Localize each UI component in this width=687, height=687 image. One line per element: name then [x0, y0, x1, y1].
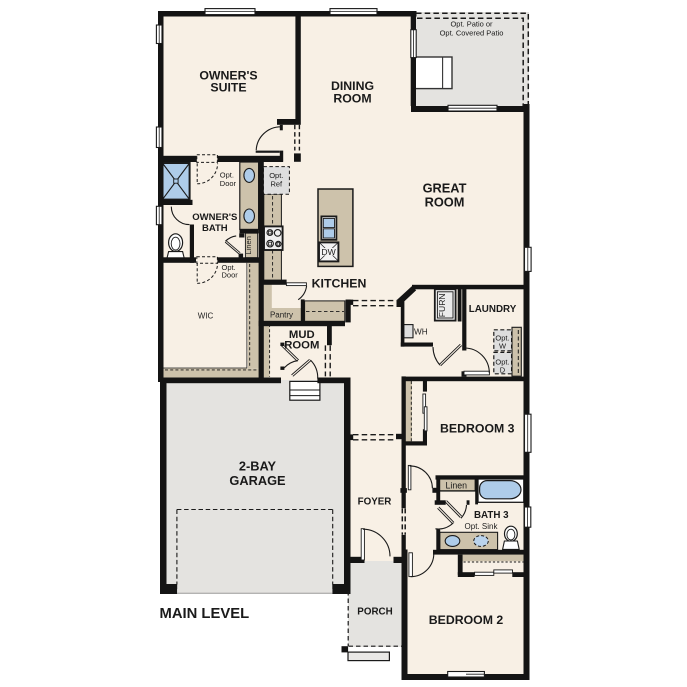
svg-text:BATH 3: BATH 3: [474, 510, 509, 521]
svg-text:GARAGE: GARAGE: [229, 473, 286, 488]
svg-text:BATH: BATH: [202, 223, 228, 234]
svg-text:Opt. Sink: Opt. Sink: [465, 522, 499, 531]
svg-text:W: W: [499, 341, 507, 350]
svg-text:Linen: Linen: [244, 236, 253, 254]
svg-text:MAIN LEVEL: MAIN LEVEL: [160, 606, 250, 622]
svg-text:BEDROOM 2: BEDROOM 2: [429, 613, 504, 627]
svg-text:FOYER: FOYER: [358, 496, 392, 507]
svg-text:Door: Door: [220, 179, 237, 188]
svg-text:Linen: Linen: [446, 481, 468, 491]
svg-text:GREAT: GREAT: [423, 181, 467, 196]
svg-text:SUITE: SUITE: [210, 81, 246, 95]
svg-text:Opt. Patio or: Opt. Patio or: [450, 19, 493, 28]
svg-text:OWNER'S: OWNER'S: [192, 212, 237, 223]
svg-text:Door: Door: [222, 271, 239, 280]
svg-text:2-BAY: 2-BAY: [239, 459, 277, 474]
svg-text:PORCH: PORCH: [357, 607, 392, 618]
svg-text:LAUNDRY: LAUNDRY: [469, 304, 517, 315]
svg-text:Opt. Covered Patio: Opt. Covered Patio: [440, 28, 504, 37]
svg-text:DW: DW: [321, 247, 336, 257]
svg-text:ROOM: ROOM: [425, 195, 465, 210]
svg-text:WIC: WIC: [198, 311, 214, 320]
svg-text:ROOM: ROOM: [333, 92, 371, 106]
svg-text:D: D: [500, 365, 506, 374]
svg-text:ROOM: ROOM: [284, 339, 319, 351]
svg-text:FURN: FURN: [437, 293, 447, 317]
svg-text:Pantry: Pantry: [270, 311, 293, 320]
svg-text:Ref: Ref: [270, 180, 283, 189]
svg-text:BEDROOM 3: BEDROOM 3: [440, 422, 515, 436]
svg-text:WH: WH: [414, 328, 428, 337]
svg-text:KITCHEN: KITCHEN: [312, 276, 367, 290]
